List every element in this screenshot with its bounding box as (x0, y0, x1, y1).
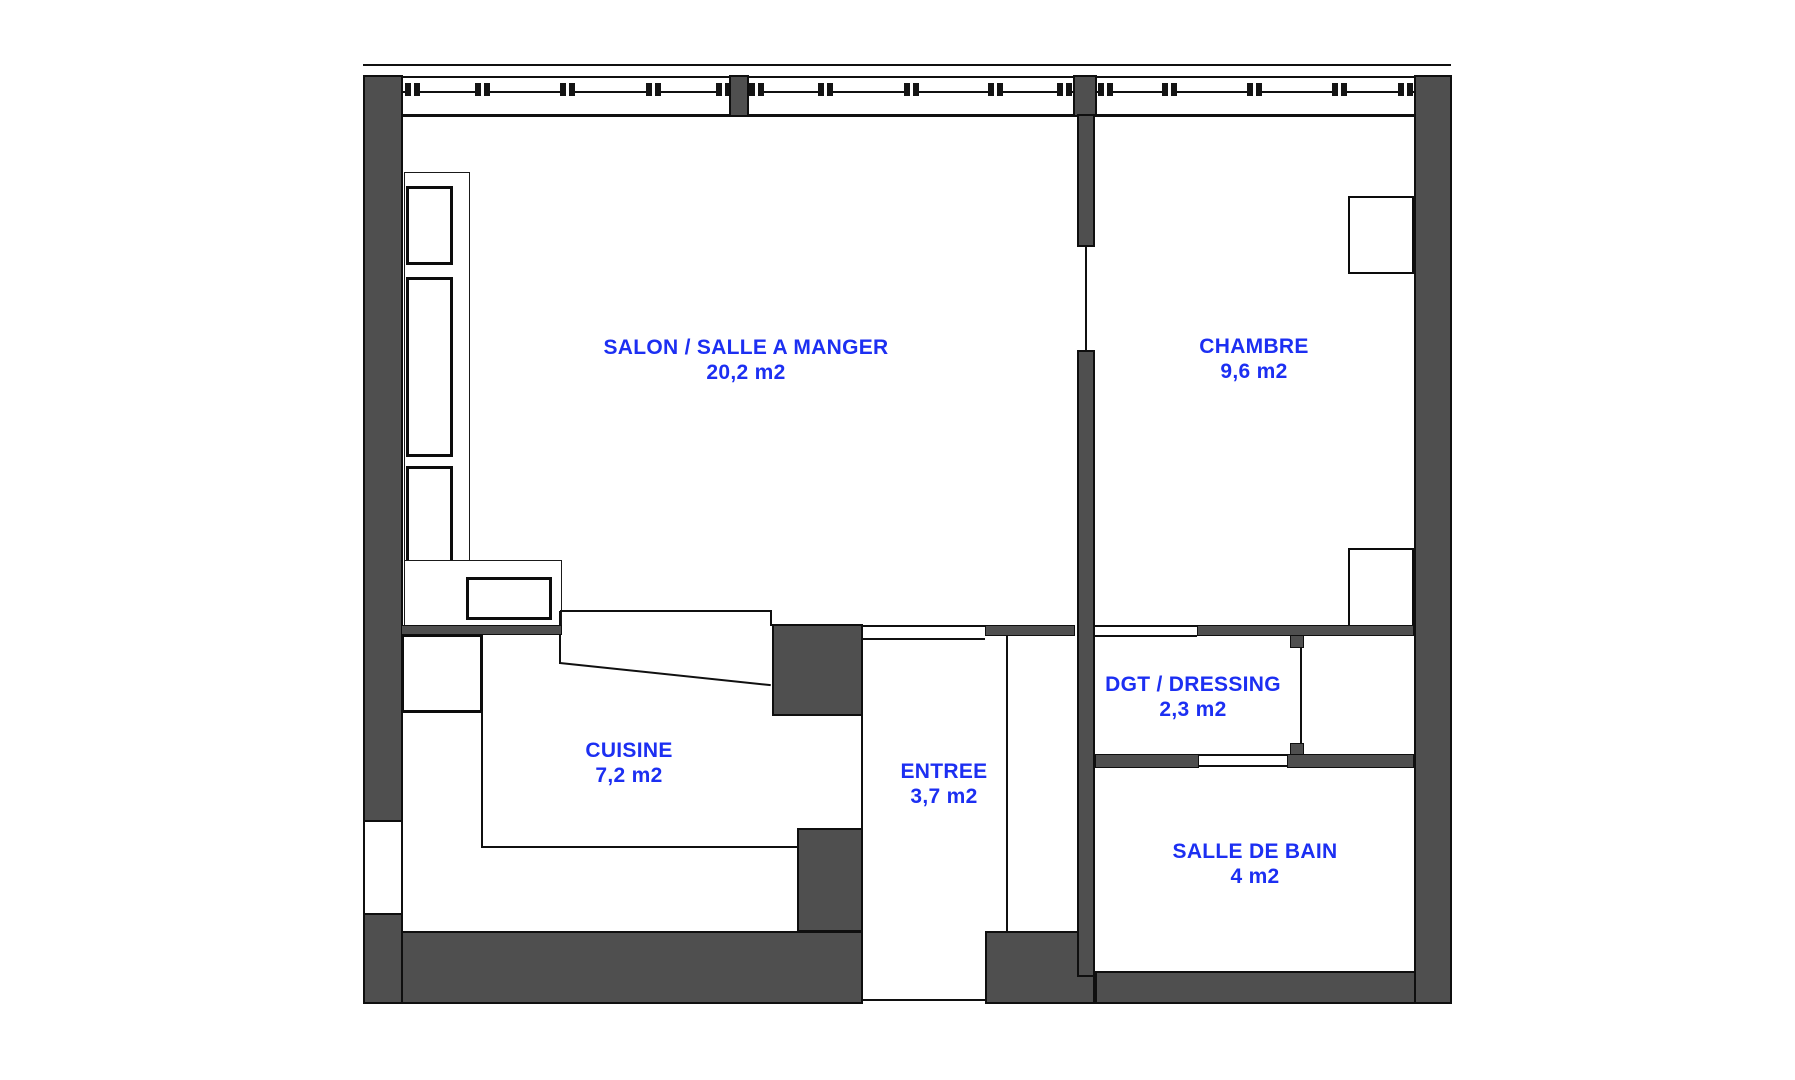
bathroom-door-threshold-top (1199, 754, 1287, 756)
room-area: 20,2 m2 (546, 360, 946, 385)
bar-counter-diagonal-line (560, 662, 771, 686)
room-area: 9,6 m2 (1054, 359, 1454, 384)
window-pillar (729, 75, 749, 117)
window-mullion-icon (1398, 83, 1413, 96)
bathroom-top-wall-right (1287, 754, 1414, 768)
window-mullion-icon (749, 83, 764, 96)
window-mullion-icon (1332, 83, 1347, 96)
exterior-wall-bottom-bathroom (1095, 971, 1452, 1004)
interior-top-line (401, 114, 1414, 117)
salon-bedroom-partition-upper (1077, 114, 1095, 247)
window-outer-line (363, 64, 1451, 66)
room-name: DGT / DRESSING (993, 672, 1393, 697)
room-name: SALON / SALLE A MANGER (546, 335, 946, 360)
salon-shelf-box (406, 277, 453, 457)
kitchen-counter-horizontal-line (481, 846, 798, 848)
window-mullion-icon (1098, 83, 1113, 96)
bedroom-closet-bottom (1348, 548, 1414, 629)
salon-shelf-box (406, 186, 453, 265)
window-mullion-icon (405, 83, 420, 96)
window-mullion-icon (1162, 83, 1177, 96)
room-label-dressing: DGT / DRESSING 2,3 m2 (993, 672, 1393, 722)
kitchen-pier-bottom (797, 828, 863, 932)
bar-counter-left-line (559, 611, 561, 664)
entrance-door-threshold-line (863, 999, 985, 1001)
window-mullion-icon (646, 83, 661, 96)
partition-top-pillar (1073, 75, 1097, 117)
room-label-entree: ENTREE 3,7 m2 (744, 759, 1144, 809)
floor-plan-canvas: SALON / SALLE A MANGER 20,2 m2 CHAMBRE 9… (0, 0, 1795, 1080)
salon-desk-box (466, 577, 552, 620)
bathroom-door-threshold-bottom (1199, 765, 1287, 767)
bedroom-dressing-opening (1095, 625, 1197, 637)
room-label-chambre: CHAMBRE 9,6 m2 (1054, 334, 1454, 384)
window-mullion-icon (818, 83, 833, 96)
closet-door-jamb-top (1290, 635, 1304, 648)
window-mullion-icon (904, 83, 919, 96)
hall-top-wall (985, 625, 1075, 636)
bedroom-bottom-wall (1197, 625, 1414, 636)
room-area: 2,3 m2 (993, 697, 1393, 722)
room-name: SALLE DE BAIN (1055, 839, 1455, 864)
bar-counter-top-line (560, 610, 772, 612)
left-wall-light-segment (363, 820, 403, 915)
exterior-wall-left (363, 75, 403, 822)
window-glass-line-top (363, 76, 1451, 78)
room-label-salon: SALON / SALLE A MANGER 20,2 m2 (546, 335, 946, 385)
window-mullion-icon (1247, 83, 1262, 96)
window-mullion-icon (475, 83, 490, 96)
exterior-wall-bottom-left (401, 931, 863, 1004)
room-area: 4 m2 (1055, 864, 1455, 889)
room-name: CHAMBRE (1054, 334, 1454, 359)
kitchen-pier-top (772, 624, 863, 716)
room-name: ENTREE (744, 759, 1144, 784)
kitchen-appliance-box (401, 634, 483, 713)
window-mullion-icon (560, 83, 575, 96)
salon-shelf-box (406, 466, 453, 563)
window-mullion-icon (988, 83, 1003, 96)
salon-kitchen-divider-wall (401, 625, 562, 635)
room-label-salle-de-bain: SALLE DE BAIN 4 m2 (1055, 839, 1455, 889)
hall-salon-opening (862, 625, 985, 640)
bedroom-closet-top (1348, 196, 1414, 274)
room-area: 3,7 m2 (744, 784, 1144, 809)
window-mullion-icon (1057, 83, 1072, 96)
exterior-wall-left-corner (363, 913, 403, 1004)
